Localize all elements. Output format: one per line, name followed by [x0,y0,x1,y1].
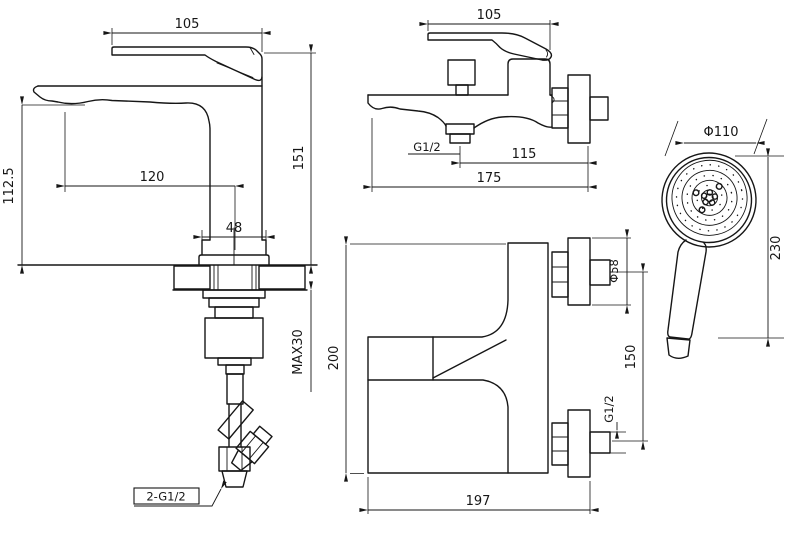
bath-mixer-side-view: 105 G1/2 115 175 [368,8,608,192]
horseshoe-washer [203,290,265,298]
dim-shower-head-diameter: Φ110 [703,125,738,140]
wall-flange [568,75,590,143]
bath-mixer-front-view: 200 197 Φ58 150 G1/2 [327,238,648,514]
dim-front-escutcheon: Φ58 [607,259,621,283]
dim-mixer-outlet-thread: G1/2 [413,140,440,154]
basin-lever [112,47,262,80]
dim-mixer-total-depth: 175 [477,171,502,186]
technical-drawing-canvas: 105 151 MAX30 112.5 120 48 2-G1/2 [0,0,800,533]
dim-front-body-height: 200 [327,346,342,371]
countertop-hatch-left [174,266,210,289]
hand-shower-connector [667,338,690,358]
basin-faucet-view: 105 151 MAX30 112.5 120 48 2-G1/2 [2,17,317,506]
technical-drawing-page: 105 151 MAX30 112.5 120 48 2-G1/2 [0,0,800,533]
hose-fitting-2 [227,424,275,475]
dim-basin-spout-reach: 120 [140,170,165,185]
basin-faucet-body [18,47,317,487]
hand-shower-view: Φ110 230 [653,119,784,358]
dim-mixer-handle-length: 105 [477,8,502,23]
hand-shower-dimensions: Φ110 230 [665,119,784,338]
diverter-knob [448,60,475,85]
dim-front-inlet-thread: G1/2 [602,395,616,422]
dim-mixer-outlet-to-wall: 115 [512,147,537,162]
dim-basin-handle-length: 105 [175,17,200,32]
front-bottom-pipe [590,432,610,453]
dim-basin-total-height: 151 [292,146,307,171]
front-top-flange [568,238,590,305]
dim-basin-max-deck: MAX30 [291,329,306,375]
wall-hex-nut [552,88,568,128]
mounting-nut [205,318,263,358]
dim-basin-base-width: 48 [226,221,243,236]
hand-shower-handle [668,240,706,339]
dim-front-inlet-spacing: 150 [624,345,639,370]
front-top-hex-nut [552,252,568,297]
dim-basin-spout-height: 112.5 [2,167,17,204]
countertop-hatch-right [259,266,305,289]
bath-mixer-front-body [368,238,610,477]
braided-hose-1 [227,374,243,404]
dim-basin-hose-thread: 2-G1/2 [146,490,185,504]
front-bottom-hex-nut [552,423,568,465]
bath-mixer-side-dimensions: 105 G1/2 115 175 [372,8,588,192]
bath-mixer-side-body [368,33,608,143]
front-bottom-flange [568,410,590,477]
nozzle-ring-middle [683,171,737,225]
inlet-pipe [590,97,608,120]
hand-shower-head [653,144,766,359]
spout-outlet [446,124,474,134]
dim-shower-length: 230 [769,236,784,261]
dim-front-body-width: 197 [466,494,491,509]
